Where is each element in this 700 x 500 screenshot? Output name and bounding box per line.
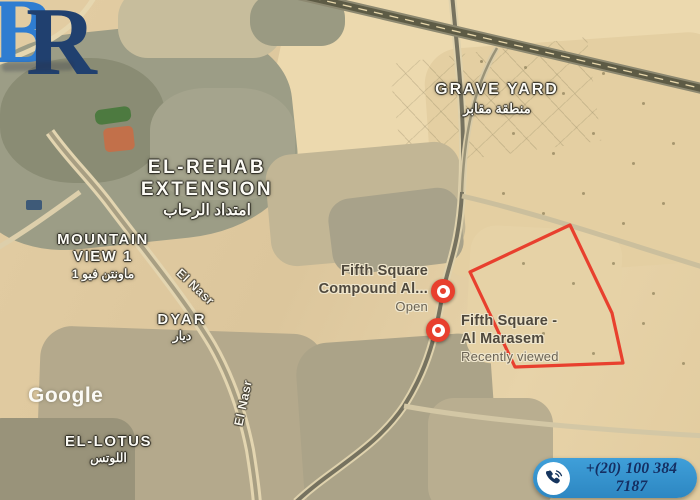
place-status-open: Open bbox=[258, 298, 428, 316]
phone-icon-circle bbox=[537, 462, 570, 495]
label-mountain-view-1: MOUNTAIN VIEW 1 ماونتن فيو 1 bbox=[22, 231, 184, 281]
label-grave-yard-en: GRAVE YARD bbox=[435, 81, 559, 98]
marker-dot bbox=[435, 327, 441, 333]
place-name-line1: Fifth Square - bbox=[461, 313, 557, 329]
label-el-rehab-line2: EXTENSION bbox=[141, 179, 273, 200]
label-dyar-en: DYAR bbox=[157, 311, 206, 328]
phone-number-text: +(20) 100 384 7187 bbox=[570, 460, 697, 496]
label-grave-yard: GRAVE YARD منطقة مقابر bbox=[397, 81, 597, 116]
place-name-line1: Fifth Square bbox=[341, 263, 428, 279]
label-dyar-ar: ديار bbox=[132, 329, 232, 343]
marker-dot bbox=[440, 288, 446, 294]
map-marker-al-marasem[interactable] bbox=[426, 318, 450, 342]
google-watermark: Google bbox=[28, 384, 103, 408]
label-el-rehab-line1: EL-REHAB bbox=[148, 157, 266, 178]
label-dyar: DYAR ديار bbox=[132, 311, 232, 344]
brand-logo-letter-r: R bbox=[26, 0, 97, 98]
marker-ring bbox=[432, 324, 445, 337]
phone-icon bbox=[543, 468, 564, 489]
label-mountain-view-line1: MOUNTAIN bbox=[57, 231, 149, 248]
place-label-al-marasem[interactable]: Fifth Square - Al Marasem Recently viewe… bbox=[461, 313, 621, 366]
label-el-lotus-en: EL-LOTUS bbox=[65, 433, 152, 450]
place-label-fifth-square-compound[interactable]: Fifth Square Compound Al... Open bbox=[258, 263, 428, 316]
satellite-map-canvas[interactable]: GRAVE YARD منطقة مقابر EL-REHAB EXTENSIO… bbox=[0, 0, 700, 500]
brand-logo-tagline-blur bbox=[2, 61, 74, 71]
label-mountain-view-ar: ماونتن فيو 1 bbox=[22, 267, 184, 281]
place-status-recently-viewed: Recently viewed bbox=[461, 348, 621, 366]
label-mountain-view-line2: VIEW 1 bbox=[73, 248, 133, 265]
label-el-rehab-extension: EL-REHAB EXTENSION امتداد الرحاب bbox=[107, 157, 307, 220]
label-el-lotus-ar: اللوتس bbox=[36, 451, 181, 465]
place-name-line2: Compound Al... bbox=[319, 281, 428, 297]
place-name-line2: Al Marasem bbox=[461, 331, 544, 347]
label-el-rehab-ar: امتداد الرحاب bbox=[107, 202, 307, 220]
map-marker-fifth-square-compound[interactable] bbox=[431, 279, 455, 303]
brand-logo: B R bbox=[0, 0, 112, 88]
marker-ring bbox=[437, 285, 450, 298]
label-el-lotus: EL-LOTUS اللوتس bbox=[36, 433, 181, 466]
phone-contact-badge[interactable]: +(20) 100 384 7187 bbox=[533, 458, 697, 498]
label-grave-yard-ar: منطقة مقابر bbox=[397, 101, 597, 116]
